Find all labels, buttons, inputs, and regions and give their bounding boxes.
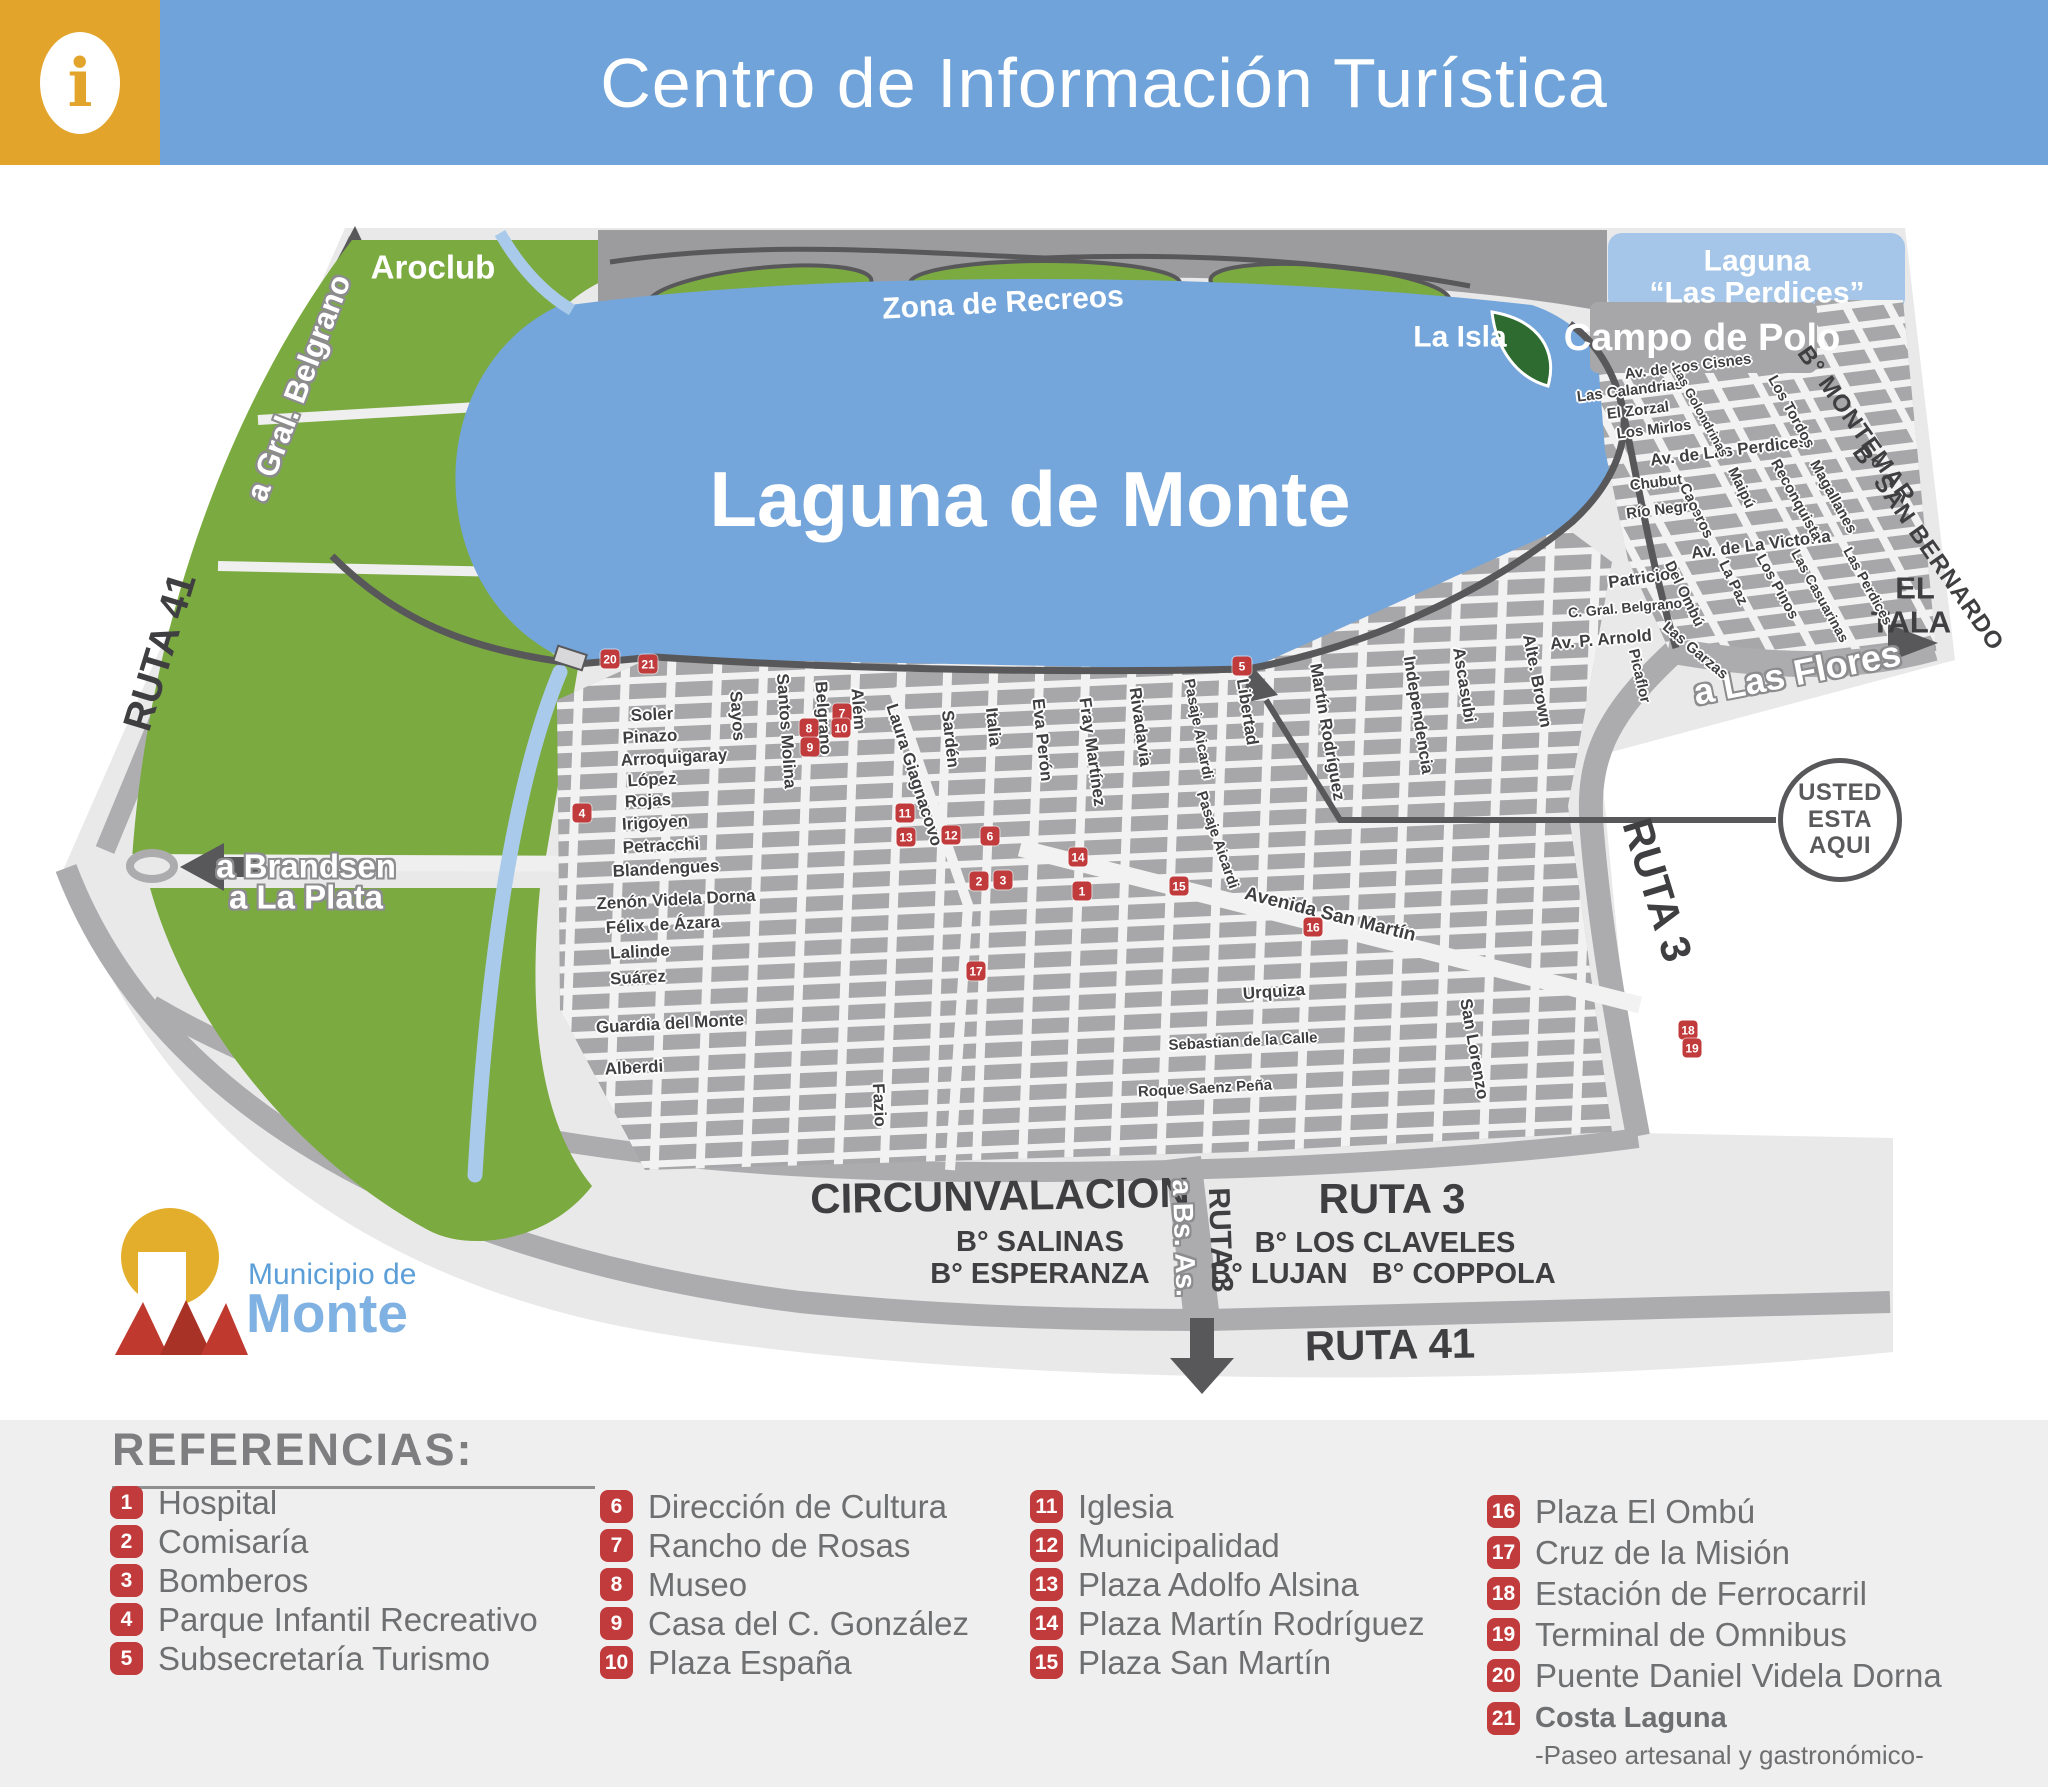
legend-badge: 10 (600, 1646, 633, 1679)
legend-column: 16Plaza El Ombú17Cruz de la Misión18Esta… (1487, 1491, 1942, 1771)
legend-item: 19Terminal de Omnibus (1487, 1614, 1942, 1655)
legend-label: Hospital (158, 1484, 277, 1522)
legend-label: Iglesia (1078, 1488, 1173, 1526)
legend-item: 3Bomberos (110, 1561, 538, 1600)
logo-leaf-icon (201, 1303, 248, 1355)
legend-badge: 1 (110, 1486, 143, 1519)
legend-badge: 12 (1030, 1529, 1063, 1562)
legend-label: Plaza El Ombú (1535, 1493, 1755, 1531)
legend-label: Plaza Martín Rodríguez (1078, 1605, 1425, 1643)
legend-badge: 3 (110, 1564, 143, 1597)
legend-item: 14Plaza Martín Rodríguez (1030, 1604, 1425, 1643)
map-marker-20: 20 (601, 650, 620, 669)
legend-item: 9Casa del C. González (600, 1604, 969, 1643)
legend-badge: 9 (600, 1607, 633, 1640)
info-icon: i (40, 32, 120, 134)
legend-item: 11Iglesia (1030, 1487, 1425, 1526)
you-are-here-text: ESTA (1808, 807, 1872, 834)
legend-label: Plaza Adolfo Alsina (1078, 1566, 1359, 1604)
map-marker-12: 12 (942, 826, 961, 845)
legend-badge: 14 (1030, 1607, 1063, 1640)
legend-item: 2Comisaría (110, 1522, 538, 1561)
legend-label: Parque Infantil Recreativo (158, 1601, 538, 1639)
bsas-road (1183, 1158, 1202, 1320)
legend-label: Dirección de Cultura (648, 1488, 947, 1526)
park-road-2 (218, 566, 512, 572)
legend-column: 1Hospital2Comisaría3Bomberos4Parque Infa… (110, 1483, 538, 1678)
info-box: i (0, 0, 160, 165)
legend-badge: 8 (600, 1568, 633, 1601)
you-are-here-badge: USTEDESTAAQUI (1778, 758, 1902, 882)
legend-item: 21Costa Laguna-Paseo artesanal y gastron… (1487, 1702, 1942, 1771)
map-marker-21: 21 (639, 655, 658, 674)
map-marker-5: 5 (1233, 657, 1252, 676)
legend-item: 20Puente Daniel Videla Dorna (1487, 1655, 1942, 1696)
legend-column: 11Iglesia12Municipalidad13Plaza Adolfo A… (1030, 1487, 1425, 1682)
map-marker-15: 15 (1170, 877, 1189, 896)
legend-item: 8Museo (600, 1565, 969, 1604)
legend-label: Puente Daniel Videla Dorna (1535, 1657, 1942, 1695)
logo-line2: Monte (246, 1282, 408, 1344)
legend-sublabel: -Paseo artesanal y gastronómico- (1535, 1740, 1924, 1771)
legend-label: Rancho de Rosas (648, 1527, 910, 1565)
title-bar: Centro de Información Turística (160, 0, 2048, 165)
legend-label: Subsecretaría Turismo (158, 1640, 490, 1678)
legend-column: 6Dirección de Cultura7Rancho de Rosas8Mu… (600, 1487, 969, 1682)
legend-item: 4Parque Infantil Recreativo (110, 1600, 538, 1639)
map-marker-11: 11 (896, 804, 915, 823)
legend-item: 15Plaza San Martín (1030, 1643, 1425, 1682)
legend-badge: 19 (1487, 1618, 1520, 1651)
legend-label: Bomberos (158, 1562, 308, 1600)
legend-badge: 6 (600, 1490, 633, 1523)
legend-item: 5Subsecretaría Turismo (110, 1639, 538, 1678)
legend-badge: 21 (1487, 1702, 1520, 1735)
map-marker-16: 16 (1304, 918, 1323, 937)
legend-item: 18Estación de Ferrocarril (1487, 1573, 1942, 1614)
legend-label: Plaza San Martín (1078, 1644, 1331, 1682)
legend-heading: REFERENCIAS: (112, 1424, 595, 1489)
legend-badge: 11 (1030, 1490, 1063, 1523)
map-marker-14: 14 (1069, 848, 1088, 867)
legend-label: Comisaría (158, 1523, 308, 1561)
map-marker-4: 4 (573, 804, 592, 823)
legend-badge: 7 (600, 1529, 633, 1562)
legend-item: 12Municipalidad (1030, 1526, 1425, 1565)
map-marker-8: 8 (800, 719, 819, 738)
legend-item: 6Dirección de Cultura (600, 1487, 969, 1526)
map-marker-6: 6 (981, 827, 1000, 846)
map-marker-13: 13 (897, 828, 916, 847)
logo-leaf-icon (160, 1300, 212, 1355)
map-marker-10: 10 (832, 719, 851, 738)
map-marker-18: 18 (1679, 1021, 1698, 1040)
legend-badge: 17 (1487, 1536, 1520, 1569)
legend-badge: 13 (1030, 1568, 1063, 1601)
legend-label: Casa del C. González (648, 1605, 969, 1643)
logo-leaf-icon (115, 1302, 168, 1355)
legend-label: Municipalidad (1078, 1527, 1280, 1565)
map-marker-3: 3 (994, 871, 1013, 890)
tourist-map-poster: Municipio de Monte i Centro de Informaci… (0, 0, 2048, 1787)
legend-badge: 16 (1487, 1495, 1520, 1528)
legend-badge: 5 (110, 1642, 143, 1675)
legend-item: 10Plaza España (600, 1643, 969, 1682)
header: i Centro de Información Turística (0, 0, 2048, 165)
legend-label: Plaza España (648, 1644, 852, 1682)
legend-item: 17Cruz de la Misión (1487, 1532, 1942, 1573)
legend-item: 7Rancho de Rosas (600, 1526, 969, 1565)
you-are-here-text: USTED (1798, 780, 1882, 807)
south-arrow-shaft (1190, 1318, 1214, 1360)
legend-item: 1Hospital (110, 1483, 538, 1522)
roundabout (130, 853, 174, 879)
map-marker-17: 17 (967, 962, 986, 981)
legend-badge: 2 (110, 1525, 143, 1558)
legend-badge: 4 (110, 1603, 143, 1636)
legend-badge: 18 (1487, 1577, 1520, 1610)
west-arrow-shaft (222, 857, 258, 877)
legend-label: Estación de Ferrocarril (1535, 1575, 1867, 1613)
legend-label: Terminal de Omnibus (1535, 1616, 1847, 1654)
legend-item: 16Plaza El Ombú (1487, 1491, 1942, 1532)
legend-item: 13Plaza Adolfo Alsina (1030, 1565, 1425, 1604)
map-marker-1: 1 (1073, 882, 1092, 901)
campo-de-polo-block (1590, 302, 1817, 373)
legend-badge: 20 (1487, 1659, 1520, 1692)
legend-badge: 15 (1030, 1646, 1063, 1679)
legend-label: Museo (648, 1566, 747, 1604)
legend-label: Cruz de la Misión (1535, 1534, 1790, 1572)
map-marker-2: 2 (970, 872, 989, 891)
you-are-here-text: AQUI (1809, 833, 1871, 860)
map-marker-19: 19 (1683, 1039, 1702, 1058)
legend-label: Costa Laguna (1535, 1702, 1924, 1735)
map-marker-9: 9 (801, 738, 820, 757)
page-title: Centro de Información Turística (600, 43, 1608, 123)
